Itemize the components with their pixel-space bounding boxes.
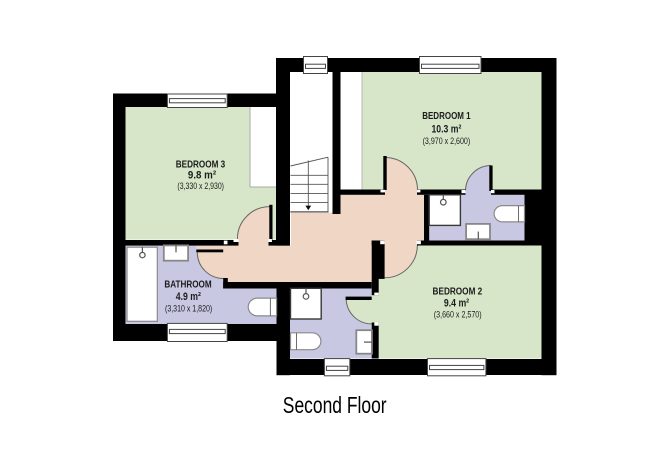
svg-text:(3,310 x 1,820): (3,310 x 1,820)	[165, 304, 213, 314]
svg-text:(3,330 x 2,930): (3,330 x 2,930)	[177, 181, 224, 191]
svg-text:9.8 m²: 9.8 m²	[188, 170, 217, 182]
svg-text:9.4 m²: 9.4 m²	[444, 298, 470, 310]
svg-text:(3,660 x 2,570): (3,660 x 2,570)	[434, 310, 482, 320]
svg-text:BATHROOM: BATHROOM	[164, 279, 212, 290]
svg-text:4.9 m²: 4.9 m²	[176, 291, 202, 303]
svg-text:Second Floor: Second Floor	[283, 394, 387, 419]
svg-text:BEDROOM 2: BEDROOM 2	[433, 286, 483, 297]
svg-text:(3,970 x 2,600): (3,970 x 2,600)	[423, 136, 471, 146]
svg-text:BEDROOM 1: BEDROOM 1	[422, 110, 470, 121]
svg-text:10.3 m²: 10.3 m²	[431, 124, 461, 136]
svg-text:BEDROOM 3: BEDROOM 3	[176, 159, 225, 170]
